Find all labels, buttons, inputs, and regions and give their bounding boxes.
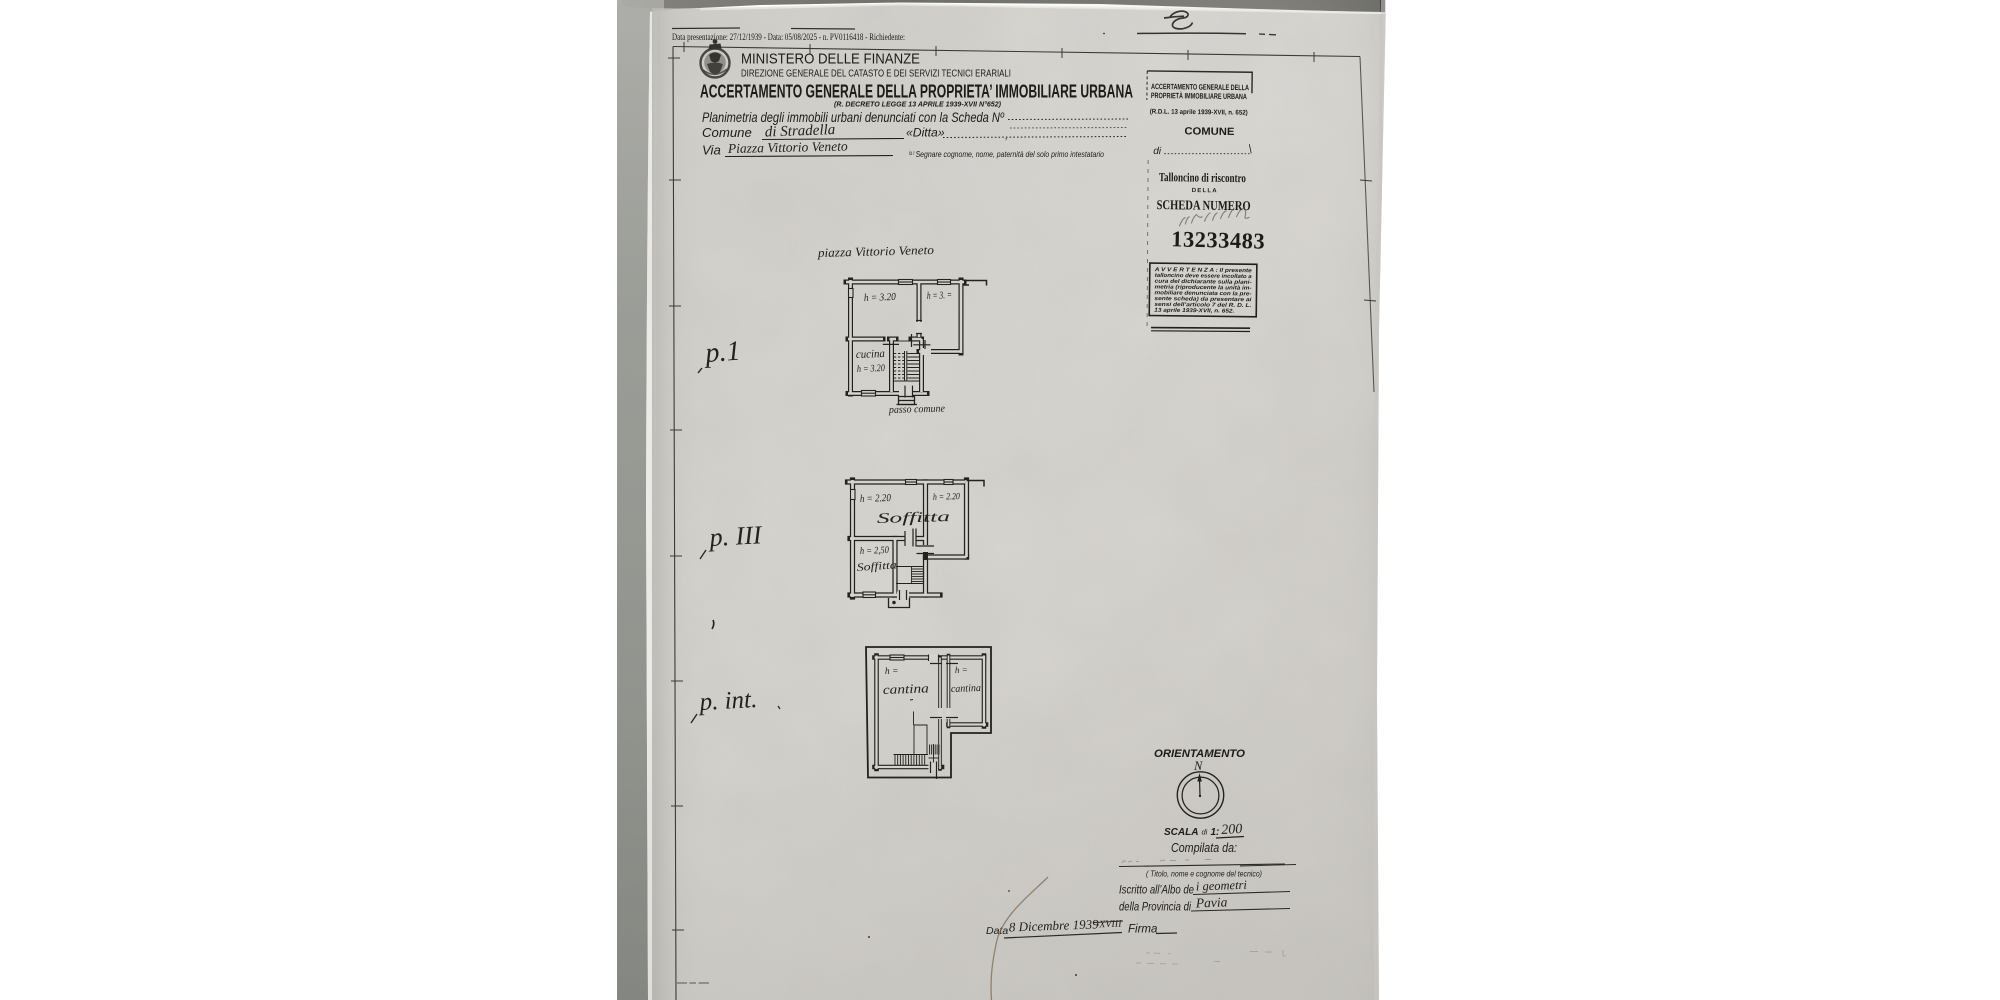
- svg-text:h = 2.20: h = 2.20: [933, 492, 961, 503]
- svg-text:DELLA: DELLA: [1192, 188, 1218, 194]
- svg-text:N: N: [1193, 759, 1203, 773]
- svg-text:di: di: [1153, 146, 1162, 157]
- svg-text:Pavia: Pavia: [1195, 894, 1228, 910]
- svg-text:MINISTERO DELLE FINANZE: MINISTERO DELLE FINANZE: [741, 51, 920, 68]
- svg-text:⁽¹⁾ Segnare cognome, nome, pat: ⁽¹⁾ Segnare cognome, nome, paternità del…: [908, 150, 1104, 159]
- svg-text:h = 3.20: h = 3.20: [864, 292, 897, 304]
- svg-text:PROPRIETÀ IMMOBILIARE URBANA: PROPRIETÀ IMMOBILIARE URBANA: [1151, 91, 1247, 101]
- svg-text:,: ,: [1005, 131, 1007, 141]
- svg-text:Soffitta: Soffitta: [877, 509, 950, 527]
- svg-text:cantina: cantina: [883, 680, 930, 697]
- svg-text:cucina: cucina: [856, 348, 886, 361]
- svg-text:ACCERTAMENTO GENERALE DELLA PR: ACCERTAMENTO GENERALE DELLA PROPRIETA’ I…: [700, 81, 1133, 102]
- svg-text:Data presentazione: 27/12/1939: Data presentazione: 27/12/1939 - Data: 0…: [672, 33, 905, 43]
- svg-text:-XVIII: -XVIII: [1096, 919, 1123, 931]
- svg-text:h = 3.20: h = 3.20: [857, 363, 885, 375]
- svg-text:8 Dicembre 1939: 8 Dicembre 1939: [1009, 916, 1100, 934]
- svg-text:1:: 1:: [1211, 827, 1220, 838]
- svg-text:200: 200: [1221, 822, 1243, 838]
- svg-text:passo comune: passo comune: [888, 404, 946, 416]
- svg-text:h = 2.20: h = 2.20: [860, 493, 892, 505]
- svg-text:h = 3. =: h = 3. =: [927, 290, 952, 302]
- svg-text:Comune: Comune: [702, 125, 752, 140]
- svg-text:SCHEDA NUMERO: SCHEDA NUMERO: [1156, 197, 1250, 213]
- svg-text:di: di: [1202, 828, 1208, 837]
- svg-text:Firma: Firma: [1128, 924, 1157, 936]
- svg-text:h =: h =: [955, 665, 968, 675]
- svg-text:13233483: 13233483: [1171, 226, 1266, 253]
- svg-text:p. int.: p. int.: [697, 686, 758, 716]
- svg-text:Compilata da:: Compilata da:: [1171, 841, 1237, 855]
- svg-text:p.1: p.1: [702, 336, 741, 370]
- svg-text:Piazza Vittorio Veneto: Piazza Vittorio Veneto: [727, 138, 848, 156]
- svg-text:Via: Via: [702, 143, 721, 158]
- svg-text:COMUNE: COMUNE: [1184, 125, 1234, 138]
- svg-text:h = 2,50: h = 2,50: [860, 545, 889, 557]
- svg-text:Data: Data: [986, 925, 1008, 937]
- svg-text:p. III: p. III: [707, 520, 764, 552]
- svg-text:della Provincia di: della Provincia di: [1119, 902, 1191, 914]
- svg-text:Talloncino di riscontro: Talloncino di riscontro: [1159, 170, 1246, 185]
- svg-text:h =: h =: [885, 667, 899, 677]
- svg-text:«Ditta»: «Ditta»: [906, 126, 945, 140]
- svg-text:cantina: cantina: [951, 683, 981, 695]
- svg-text:SCALA: SCALA: [1164, 827, 1198, 838]
- svg-text:(R. DECRETO LEGGE 13 APRILE 19: (R. DECRETO LEGGE 13 APRILE 1939-XVII N°…: [834, 100, 1002, 109]
- svg-text:DIREZIONE GENERALE DEL CATASTO: DIREZIONE GENERALE DEL CATASTO E DEI SER…: [741, 69, 1011, 80]
- svg-text:Planimetria degli immobili urb: Planimetria degli immobili urbani denunc…: [702, 110, 1005, 125]
- svg-text:13 aprile 1939-XVII, n. 652.: 13 aprile 1939-XVII, n. 652.: [1154, 308, 1235, 315]
- svg-text:i geometri: i geometri: [1196, 878, 1248, 894]
- svg-text:Iscritto all’Albo de: Iscritto all’Albo de: [1119, 885, 1194, 897]
- svg-text:di Stradella: di Stradella: [765, 122, 836, 140]
- svg-text:(R.D.L. 13 aprile 1939-XVII, n: (R.D.L. 13 aprile 1939-XVII, n. 652): [1150, 108, 1248, 116]
